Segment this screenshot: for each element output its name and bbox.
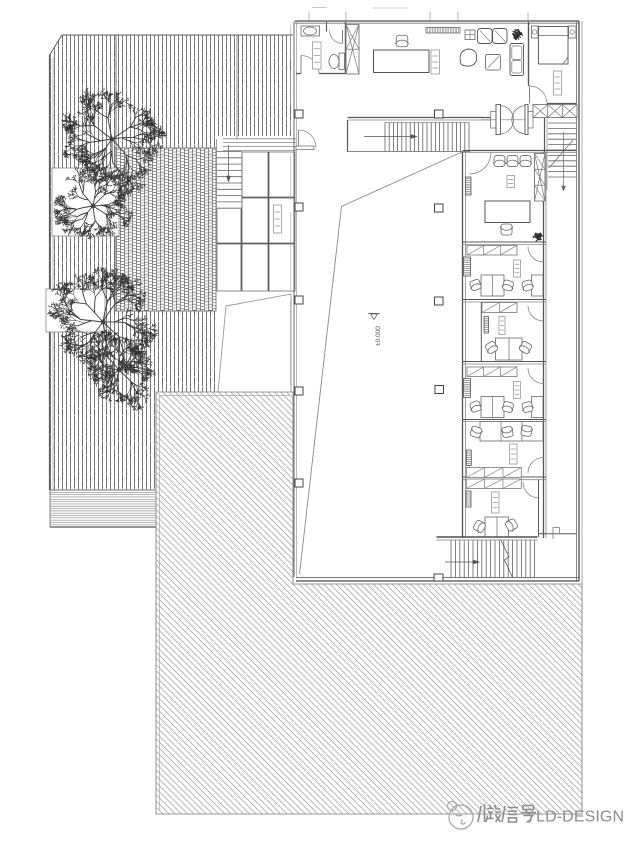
- svg-text:±0.000: ±0.000: [375, 326, 382, 346]
- svg-text:: LD-DESIGN: : LD-DESIGN: [527, 809, 624, 826]
